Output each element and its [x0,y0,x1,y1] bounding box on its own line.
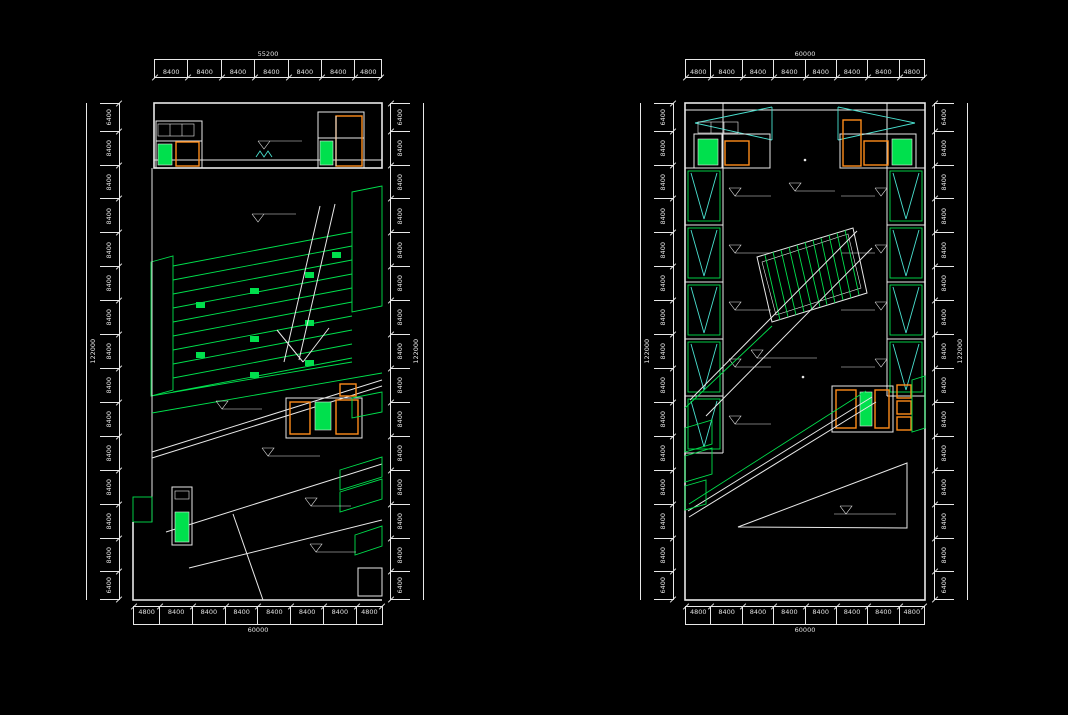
dim-segment: 8400 [935,266,954,300]
stair-treads [176,142,199,166]
dim-segment: 6400 [391,571,410,600]
dim-right-plan-bottom: 4800840084008400840084008400480060000 [685,606,925,640]
dim-segment: 8400 [391,266,410,300]
dim-left-plan-right: 6400840084008400840084008400840084008400… [390,103,424,600]
dim-segment: 8400 [187,60,220,77]
dim-segment: 8400 [257,607,290,624]
dim-segment: 8400 [654,368,673,402]
dim-segment: 8400 [935,334,954,368]
dim-segment: 8400 [654,504,673,538]
dim-segment: 6400 [935,571,954,600]
dim-segment: 8400 [391,131,410,165]
dim-segment: 8400 [654,266,673,300]
left-plan-stair-core-topleft [156,121,202,168]
elevator-cab [158,144,172,165]
dim-segment: 8400 [391,470,410,504]
dim-segment: 8400 [836,607,867,624]
dim-segment: 8400 [654,402,673,436]
dim-segment: 8400 [805,60,836,77]
dim-total: 122000 [954,103,968,600]
dim-segment: 8400 [935,436,954,470]
dim-segment: 8400 [742,60,773,77]
dim-segment: 8400 [935,165,954,199]
elevator-cab [175,512,189,542]
ramp-triangle [738,463,907,528]
dim-segment: 8400 [654,300,673,334]
elevator-cab [320,141,333,165]
dim-total: 122000 [640,103,654,600]
dim-segment: 8400 [100,300,119,334]
left-plan-lower-zone [133,168,382,600]
dim-segment: 8400 [100,402,119,436]
dim-segment: 4800 [899,607,925,624]
dim-segment: 8400 [935,198,954,232]
dim-segment: 8400 [773,60,804,77]
left-plan-elevator-shaft [172,487,192,545]
dim-segment: 8400 [935,131,954,165]
dim-segment: 8400 [100,504,119,538]
cad-viewport: 552008400840084008400840084004800 480084… [0,0,1068,715]
dim-total: 60000 [685,624,925,640]
dim-segment: 8400 [935,368,954,402]
dim-right-plan-right: 6400840084008400840084008400840084008400… [934,103,968,600]
dim-segment: 8400 [654,470,673,504]
left-plan-top-band [154,103,382,168]
right-plan-lower-zone [685,376,925,528]
dim-right-plan-left: 1220006400840084008400840084008400840084… [640,103,674,600]
dim-total: 60000 [685,44,925,60]
dim-segment: 8400 [654,538,673,572]
dim-segment: 8400 [867,60,898,77]
dim-segment: 8400 [100,368,119,402]
dim-segment: 8400 [935,300,954,334]
dim-segment: 8400 [742,607,773,624]
dim-left-plan-left: 1220006400840084008400840084008400840084… [86,103,120,600]
dim-segment: 6400 [100,103,119,131]
dim-segment: 8400 [100,232,119,266]
dim-segment: 8400 [710,60,741,77]
left-plan-ramp-zone [151,186,382,396]
shaft [864,141,888,165]
dim-segment: 8400 [192,607,225,624]
dim-segment: 8400 [935,232,954,266]
dim-segment: 8400 [100,266,119,300]
elevator-cab [892,139,912,165]
dim-segment: 4800 [356,607,383,624]
dim-left-plan-bottom: 4800840084008400840084008400480060000 [133,606,383,640]
dim-segment: 4800 [133,607,159,624]
dim-segment: 4800 [354,60,382,77]
dim-segment: 8400 [654,334,673,368]
dim-segment: 8400 [290,607,323,624]
dim-segment: 8400 [100,165,119,199]
dim-segment: 8400 [100,334,119,368]
dim-total: 60000 [133,624,383,640]
dim-segment: 8400 [654,131,673,165]
dim-left-plan-top: 552008400840084008400840084004800 [154,44,382,78]
dim-segment: 8400 [391,402,410,436]
dim-segment: 8400 [288,60,321,77]
dim-segment: 6400 [654,103,673,131]
left-floor-plan [133,103,382,600]
dim-segment: 8400 [225,607,258,624]
dim-segment: 8400 [654,165,673,199]
dim-segment: 4800 [685,60,710,77]
dim-segment: 6400 [100,571,119,600]
dim-segment: 4800 [899,60,925,77]
shaft [725,141,749,165]
dim-segment: 8400 [654,436,673,470]
dim-segment: 8400 [100,436,119,470]
dim-segment: 8400 [391,300,410,334]
dim-segment: 8400 [391,436,410,470]
dim-segment: 8400 [867,607,898,624]
dim-segment: 8400 [159,607,192,624]
dim-total: 122000 [410,103,424,600]
dim-segment: 6400 [654,571,673,600]
elevator-cab [698,139,718,165]
dim-segment: 8400 [935,470,954,504]
dim-segment: 8400 [935,402,954,436]
dim-segment: 8400 [710,607,741,624]
right-plan-core-topright [840,120,916,168]
stair-treads [336,400,358,434]
dim-segment: 8400 [100,198,119,232]
dim-segment: 8400 [773,607,804,624]
dim-segment: 8400 [391,368,410,402]
central-ramp-slab [685,159,872,416]
dim-segment: 8400 [654,232,673,266]
dim-segment: 8400 [805,607,836,624]
dim-segment: 6400 [391,103,410,131]
dim-total: 122000 [86,103,100,600]
dim-segment: 8400 [391,232,410,266]
dim-segment: 8400 [935,504,954,538]
dim-segment: 8400 [391,165,410,199]
dim-segment: 8400 [254,60,287,77]
dim-segment: 8400 [935,538,954,572]
stair-treads [843,120,861,166]
dim-segment: 8400 [321,60,354,77]
dim-segment: 8400 [100,538,119,572]
dim-segment: 8400 [391,504,410,538]
elevator-cab [315,402,331,430]
dim-segment: 8400 [323,607,356,624]
dim-segment: 8400 [654,198,673,232]
dim-segment: 6400 [935,103,954,131]
dim-segment: 8400 [100,470,119,504]
dim-total: 55200 [154,44,382,60]
stair-treads [290,402,310,434]
dim-segment: 8400 [391,538,410,572]
stair-treads [336,116,362,166]
dim-segment: 8400 [154,60,187,77]
dim-segment: 4800 [685,607,710,624]
dim-segment: 8400 [391,198,410,232]
dim-segment: 8400 [391,334,410,368]
left-plan-stair-core-lower [286,384,362,438]
right-plan-core-topleft [694,122,770,168]
left-wing-cells [685,168,771,453]
right-floor-plan [685,103,925,600]
dim-segment: 8400 [836,60,867,77]
escalator-fans [695,107,915,140]
right-wing-cells [841,168,925,396]
elevator-cab [860,392,872,426]
dim-segment: 8400 [221,60,254,77]
dim-segment: 8400 [100,131,119,165]
dim-right-plan-top: 6000048008400840084008400840084004800 [685,44,925,78]
